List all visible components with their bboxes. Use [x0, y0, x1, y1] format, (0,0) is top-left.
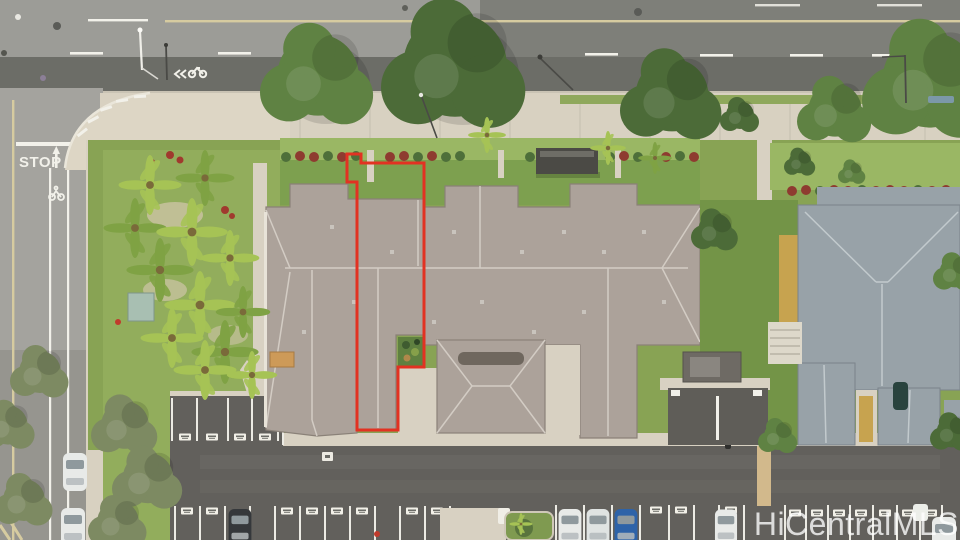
aerial-photo-canvas: STOP — [0, 0, 960, 540]
stair-structure — [768, 322, 802, 364]
main-building — [264, 184, 700, 438]
courtyard-2 — [545, 345, 580, 435]
unit-entry-path — [367, 150, 374, 182]
red-object — [374, 531, 380, 537]
car-street-1 — [63, 453, 87, 491]
unit-side-garden — [398, 337, 424, 367]
car-street-2 — [61, 508, 85, 540]
attic-vent-shadow — [458, 352, 524, 365]
yellow-wall-gap — [859, 396, 873, 442]
parking-island — [440, 508, 553, 540]
bike-rack — [928, 96, 954, 103]
west-wall-glint — [264, 212, 267, 427]
car-lot-dark — [229, 509, 252, 540]
street-center-line — [12, 100, 14, 540]
parked-car-courtyard — [893, 382, 908, 410]
stone-feature — [536, 148, 600, 178]
center-garage — [437, 340, 545, 433]
trash-enclosure — [683, 352, 741, 382]
car-lot-white-3 — [715, 510, 737, 540]
aerial-photo: STOP — [0, 0, 960, 540]
car-lot-white-2 — [587, 509, 610, 540]
tan-crossing-path — [757, 446, 771, 506]
car-lot-blue — [615, 509, 638, 540]
hydrant — [115, 319, 121, 325]
courtyard-1 — [398, 368, 437, 433]
car-lot-white-1 — [559, 509, 582, 540]
mls-watermark: HiCentralMLS — [754, 506, 959, 540]
utility-box — [128, 293, 154, 321]
entry-porch-roof — [270, 352, 294, 367]
